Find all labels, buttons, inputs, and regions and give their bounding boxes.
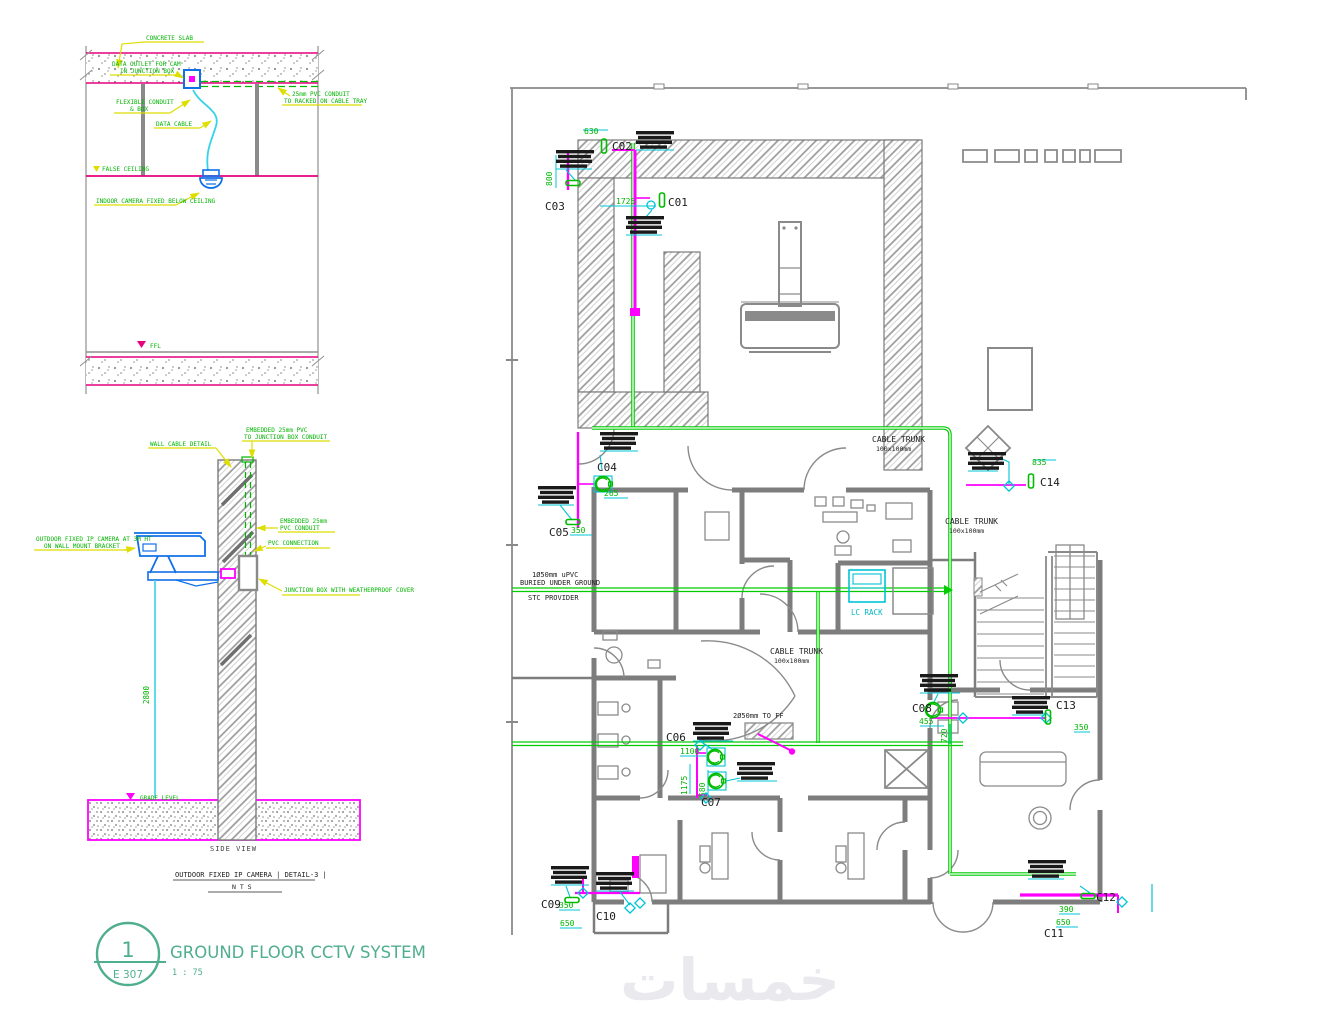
outdoor-camera-label-1: OUTDOOR FIXED IP CAMERA AT 3M HT bbox=[36, 536, 152, 543]
camera-label-c05: C05 bbox=[549, 526, 569, 539]
sheet-number: E 307 bbox=[113, 969, 143, 981]
embedded-mid-label-2: PVC CONDUIT bbox=[280, 525, 320, 532]
dim-350c: 350 bbox=[1074, 723, 1089, 732]
window-row bbox=[963, 150, 1121, 162]
camera-label-c09: C09 bbox=[541, 898, 561, 911]
cable-trunk-label-3: CABLE TRUNK bbox=[770, 647, 823, 656]
pvc-connection-label: PVC CONNECTION bbox=[268, 540, 319, 547]
dim-390: 390 bbox=[1059, 905, 1074, 914]
stc-provider-label: STC PROVIDER bbox=[528, 594, 579, 602]
to-ff-label: 2Ø50mm TO FF bbox=[733, 712, 784, 720]
bowtie-door-symbol bbox=[885, 750, 928, 788]
outer-boundary bbox=[510, 88, 1246, 935]
ffl-marker bbox=[137, 341, 146, 348]
camera-label-c11: C11 bbox=[1044, 927, 1064, 940]
indoor-camera-label: INDOOR CAMERA FIXED BELOW CEILING bbox=[96, 198, 216, 205]
dim-350b: 350 bbox=[559, 901, 574, 910]
outlet-label-2: IN JUNCTION BOX bbox=[120, 68, 175, 75]
title-block: 1 E 307 GROUND FLOOR CCTV SYSTEM 1 : 75 bbox=[94, 923, 426, 985]
outlet-point bbox=[189, 76, 195, 82]
cable-trunk-label-2: CABLE TRUNK bbox=[945, 517, 998, 526]
camera-label-c14: C14 bbox=[1040, 476, 1060, 489]
detail-caption: OUTDOOR FIXED IP CAMERA | DETAIL-3 | bbox=[175, 871, 327, 879]
dimension-texts: 630 800 1725 265 350 1100 1175 580 455 7… bbox=[545, 127, 1089, 928]
staircase bbox=[974, 552, 1097, 697]
camera-label-c08: C08 bbox=[912, 702, 932, 715]
lc-rack-label: LC RACK bbox=[851, 608, 883, 617]
indoor-camera-symbol bbox=[200, 170, 222, 188]
camera-label-c04: C04 bbox=[597, 461, 617, 474]
furniture bbox=[598, 497, 1084, 893]
flex-label-1: FLEXIBLE CONDUIT bbox=[116, 99, 174, 106]
cable-trunk-size-3: 100x100mm bbox=[774, 657, 809, 665]
dim-580: 580 bbox=[698, 782, 707, 797]
watermark: خمسات bbox=[620, 946, 840, 1014]
ceiling-hanger bbox=[141, 84, 145, 176]
cctv-drawing-canvas: FFL CONCRETE SLAB DATA OUTLET FOR CAM IN… bbox=[0, 0, 1320, 1020]
data-cable-curve bbox=[193, 90, 217, 171]
camera-label-c13: C13 bbox=[1056, 699, 1076, 712]
dim-1175: 1175 bbox=[680, 776, 689, 795]
embedded-top-label-2: TO JUNCTION BOX CONDUIT bbox=[244, 434, 327, 441]
right-mid-room bbox=[988, 348, 1032, 410]
camera-symbols bbox=[565, 139, 1095, 903]
floor-plan: LC RACK C01 C02 C03 C04 C05 C06 C07 C08 bbox=[506, 84, 1246, 940]
conduit-label-1: 25mm PVC CONDUIT bbox=[292, 91, 350, 98]
false-ceiling-label: FALSE CEILING bbox=[102, 166, 149, 173]
dim-1725: 1725 bbox=[616, 197, 635, 206]
drawing-scale: 1 : 75 bbox=[172, 968, 203, 978]
outlet-label-1: DATA OUTLET FOR CAM bbox=[112, 61, 181, 68]
dim-835: 835 bbox=[1032, 458, 1047, 467]
camera-label-c01: C01 bbox=[668, 196, 688, 209]
cable-trunk-label-1: CABLE TRUNK bbox=[872, 435, 925, 444]
dim-650a: 650 bbox=[560, 919, 575, 928]
wall-label: WALL CABLE DETAIL bbox=[150, 441, 212, 448]
dim-630: 630 bbox=[584, 127, 599, 136]
grade-marker bbox=[126, 793, 135, 800]
dim-650b: 650 bbox=[1056, 918, 1071, 927]
ceiling-hanger bbox=[255, 84, 259, 176]
flex-label-2: & BOX bbox=[130, 106, 148, 113]
grade-label: GRADE LEVEL bbox=[140, 795, 180, 802]
junction-box-label: JUNCTION BOX WITH WEATHERPROOF COVER bbox=[284, 587, 414, 594]
cable-trunk-size-1: 100x100mm bbox=[876, 445, 911, 453]
conduit-label-2: TO RACKED ON CABLE TRAY bbox=[284, 98, 367, 105]
concrete-slab-label: CONCRETE SLAB bbox=[146, 35, 193, 42]
buried-note-1: 1Ø50mm uPVC bbox=[532, 571, 578, 579]
floor-slab-hatch bbox=[86, 357, 318, 385]
lc-rack: LC RACK bbox=[849, 568, 933, 617]
dim-800: 800 bbox=[545, 171, 554, 186]
interior-walls bbox=[592, 487, 1100, 904]
height-dim: 2800 bbox=[142, 685, 151, 704]
outdoor-camera-label-2: ON WALL MOUNT BRACKET bbox=[44, 543, 120, 550]
nts-label: N T S bbox=[232, 883, 252, 891]
side-view-caption: SIDE VIEW bbox=[210, 845, 257, 853]
dim-455: 455 bbox=[919, 717, 934, 726]
embedded-top-label-1: EMBEDDED 25mm PVC bbox=[246, 427, 308, 434]
dim-1100: 1100 bbox=[680, 747, 699, 756]
camera-label-c12: C12 bbox=[1096, 891, 1116, 904]
camera-label-c06: C06 bbox=[666, 731, 686, 744]
data-cable-label: DATA CABLE bbox=[156, 121, 193, 128]
drawing-title: GROUND FLOOR CCTV SYSTEM bbox=[170, 943, 426, 962]
detail-side-view: 2800 GRADE LEVEL EMBEDDED 25mm PVC TO JU… bbox=[34, 427, 414, 892]
hall-podium bbox=[741, 222, 839, 352]
dim-350a: 350 bbox=[571, 526, 586, 535]
junction-box-wall bbox=[239, 556, 257, 590]
dim-720: 720 bbox=[940, 728, 949, 743]
false-ceiling-marker bbox=[93, 166, 100, 172]
cable-trunk-size-2: 100x100mm bbox=[949, 527, 984, 535]
buried-note-2: BURIED UNDER GROUND bbox=[520, 579, 600, 587]
ffl-label: FFL bbox=[150, 343, 161, 350]
embedded-mid-label-1: EMBEDDED 25mm bbox=[280, 518, 327, 525]
camera-label-c10: C10 bbox=[596, 910, 616, 923]
cad-sheet: FFL CONCRETE SLAB DATA OUTLET FOR CAM IN… bbox=[0, 0, 1320, 1020]
pvc-connection-box bbox=[221, 569, 235, 578]
camera-label-c03: C03 bbox=[545, 200, 565, 213]
detail-number: 1 bbox=[121, 938, 134, 962]
dim-265: 265 bbox=[604, 489, 619, 498]
cyan-annotations bbox=[538, 130, 1152, 928]
camera-label-c02: C02 bbox=[612, 140, 632, 153]
detail-ceiling-camera: FFL CONCRETE SLAB DATA OUTLET FOR CAM IN… bbox=[80, 35, 367, 394]
